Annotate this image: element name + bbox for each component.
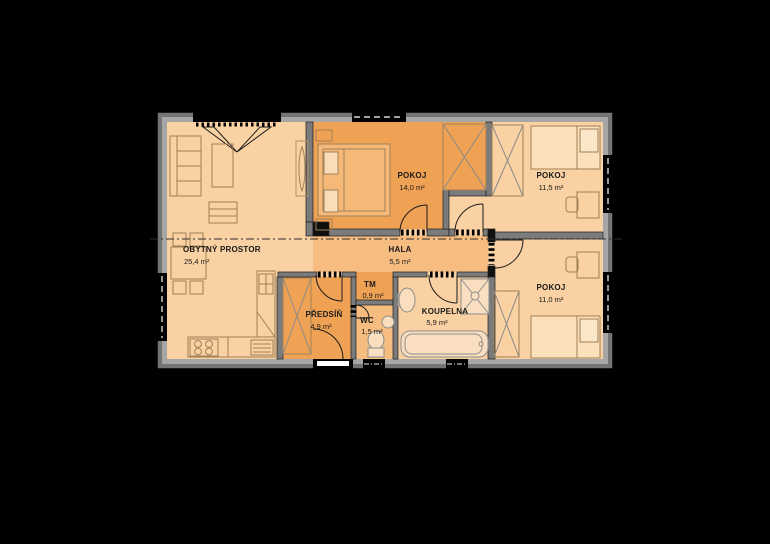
svg-text:25,4 m²: 25,4 m² bbox=[184, 257, 210, 266]
svg-text:0,9 m²: 0,9 m² bbox=[362, 291, 384, 300]
floor-plan: OBYTNÝ PROSTOR 25,4 m² POKOJ 14,0 m² POK… bbox=[0, 0, 770, 544]
svg-text:11,0 m²: 11,0 m² bbox=[539, 295, 564, 304]
svg-text:5,9 m²: 5,9 m² bbox=[426, 318, 448, 327]
wc-sink bbox=[382, 316, 394, 328]
window bbox=[603, 272, 613, 333]
svg-text:HALA: HALA bbox=[388, 245, 411, 254]
svg-text:PŘEDSÍŇ: PŘEDSÍŇ bbox=[306, 310, 343, 319]
balcony-door-opening bbox=[193, 112, 281, 122]
bathtub bbox=[401, 331, 488, 357]
floor-plan-canvas: OBYTNÝ PROSTOR 25,4 m² POKOJ 14,0 m² POK… bbox=[0, 0, 770, 544]
bed-double bbox=[318, 144, 390, 216]
svg-text:POKOJ: POKOJ bbox=[397, 171, 426, 180]
svg-text:POKOJ: POKOJ bbox=[536, 283, 565, 292]
svg-text:11,5 m²: 11,5 m² bbox=[539, 183, 564, 192]
column bbox=[313, 222, 329, 236]
bed-single bbox=[531, 126, 600, 169]
svg-text:1,5 m²: 1,5 m² bbox=[361, 327, 383, 336]
svg-text:KOUPELNA: KOUPELNA bbox=[422, 307, 469, 316]
svg-text:POKOJ: POKOJ bbox=[536, 171, 565, 180]
entrance-door-leaf bbox=[317, 361, 349, 366]
svg-text:14,0 m²: 14,0 m² bbox=[399, 183, 425, 192]
svg-text:WC: WC bbox=[360, 316, 374, 325]
room-hala-zone bbox=[313, 236, 488, 272]
bed-single bbox=[531, 316, 600, 358]
svg-text:4,9 m²: 4,9 m² bbox=[310, 322, 332, 331]
svg-text:OBYTNÝ PROSTOR: OBYTNÝ PROSTOR bbox=[183, 245, 261, 254]
svg-text:TM: TM bbox=[364, 280, 376, 289]
svg-text:5,5 m²: 5,5 m² bbox=[389, 257, 411, 266]
